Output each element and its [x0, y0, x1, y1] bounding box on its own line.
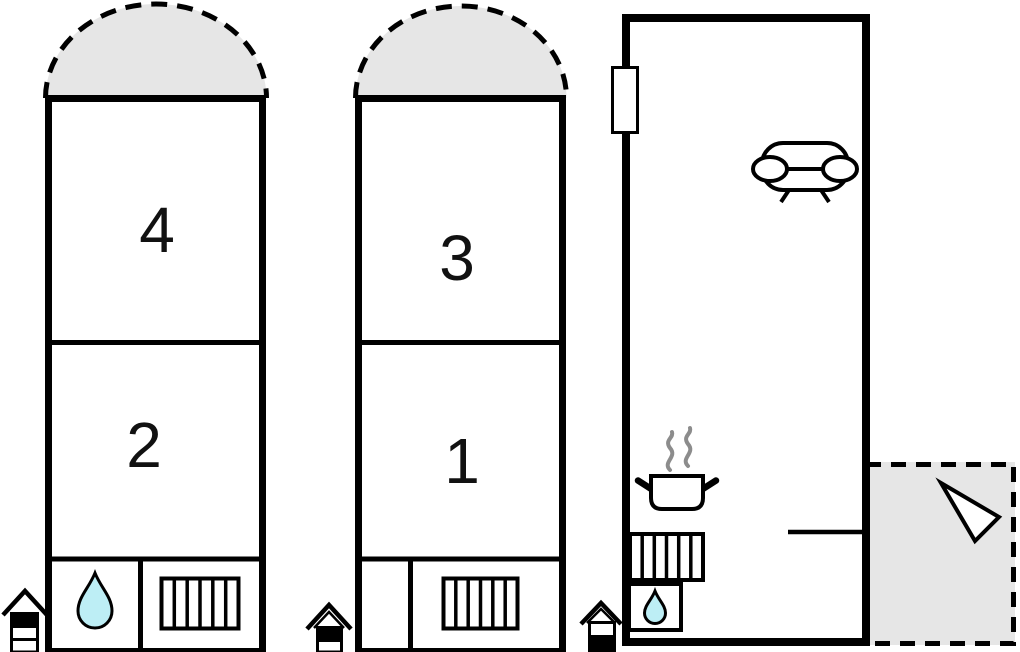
stairs-icon — [630, 534, 703, 580]
house-roof — [3, 591, 47, 615]
house-stripe-white — [12, 640, 38, 652]
entrance-house-icon-left — [3, 591, 47, 652]
house-stripe-white — [318, 641, 342, 652]
sofa-armrest — [753, 157, 787, 181]
terrace-fill — [864, 462, 1015, 645]
house-stripe-white — [590, 623, 615, 637]
balcony-middle-icon — [356, 6, 567, 98]
unit-left: 4 2 — [46, 4, 267, 652]
house-roof — [581, 603, 621, 624]
house-stripe-black — [590, 637, 615, 652]
unit-left-walls — [49, 99, 263, 652]
window-icon — [613, 68, 638, 133]
house-roof — [307, 605, 351, 629]
pot-body — [651, 476, 703, 509]
unit-middle: 3 1 — [356, 6, 567, 652]
unit-right — [613, 18, 1016, 645]
unit-middle-walls — [359, 99, 563, 652]
entrance-house-icon-middle — [307, 605, 351, 652]
terrace-area — [864, 462, 1015, 645]
room-label-3: 3 — [439, 222, 475, 294]
house-stripe-black — [12, 614, 38, 627]
stairs-icon — [162, 579, 239, 629]
room-label-4: 4 — [139, 194, 175, 266]
entrance-house-icon-right — [581, 603, 621, 652]
floor-plan-page: 4 2 3 1 — [0, 0, 1020, 652]
balcony-left-icon — [46, 4, 267, 98]
bathroom-cell — [629, 584, 681, 630]
stairs-icon — [444, 579, 518, 629]
room-label-1: 1 — [444, 425, 480, 497]
house-stripe-white — [12, 627, 38, 640]
floor-plan-drawing: 4 2 3 1 — [0, 0, 1020, 652]
room-label-2: 2 — [126, 409, 162, 481]
house-stripe-black — [318, 628, 342, 641]
sofa-armrest — [823, 157, 857, 181]
